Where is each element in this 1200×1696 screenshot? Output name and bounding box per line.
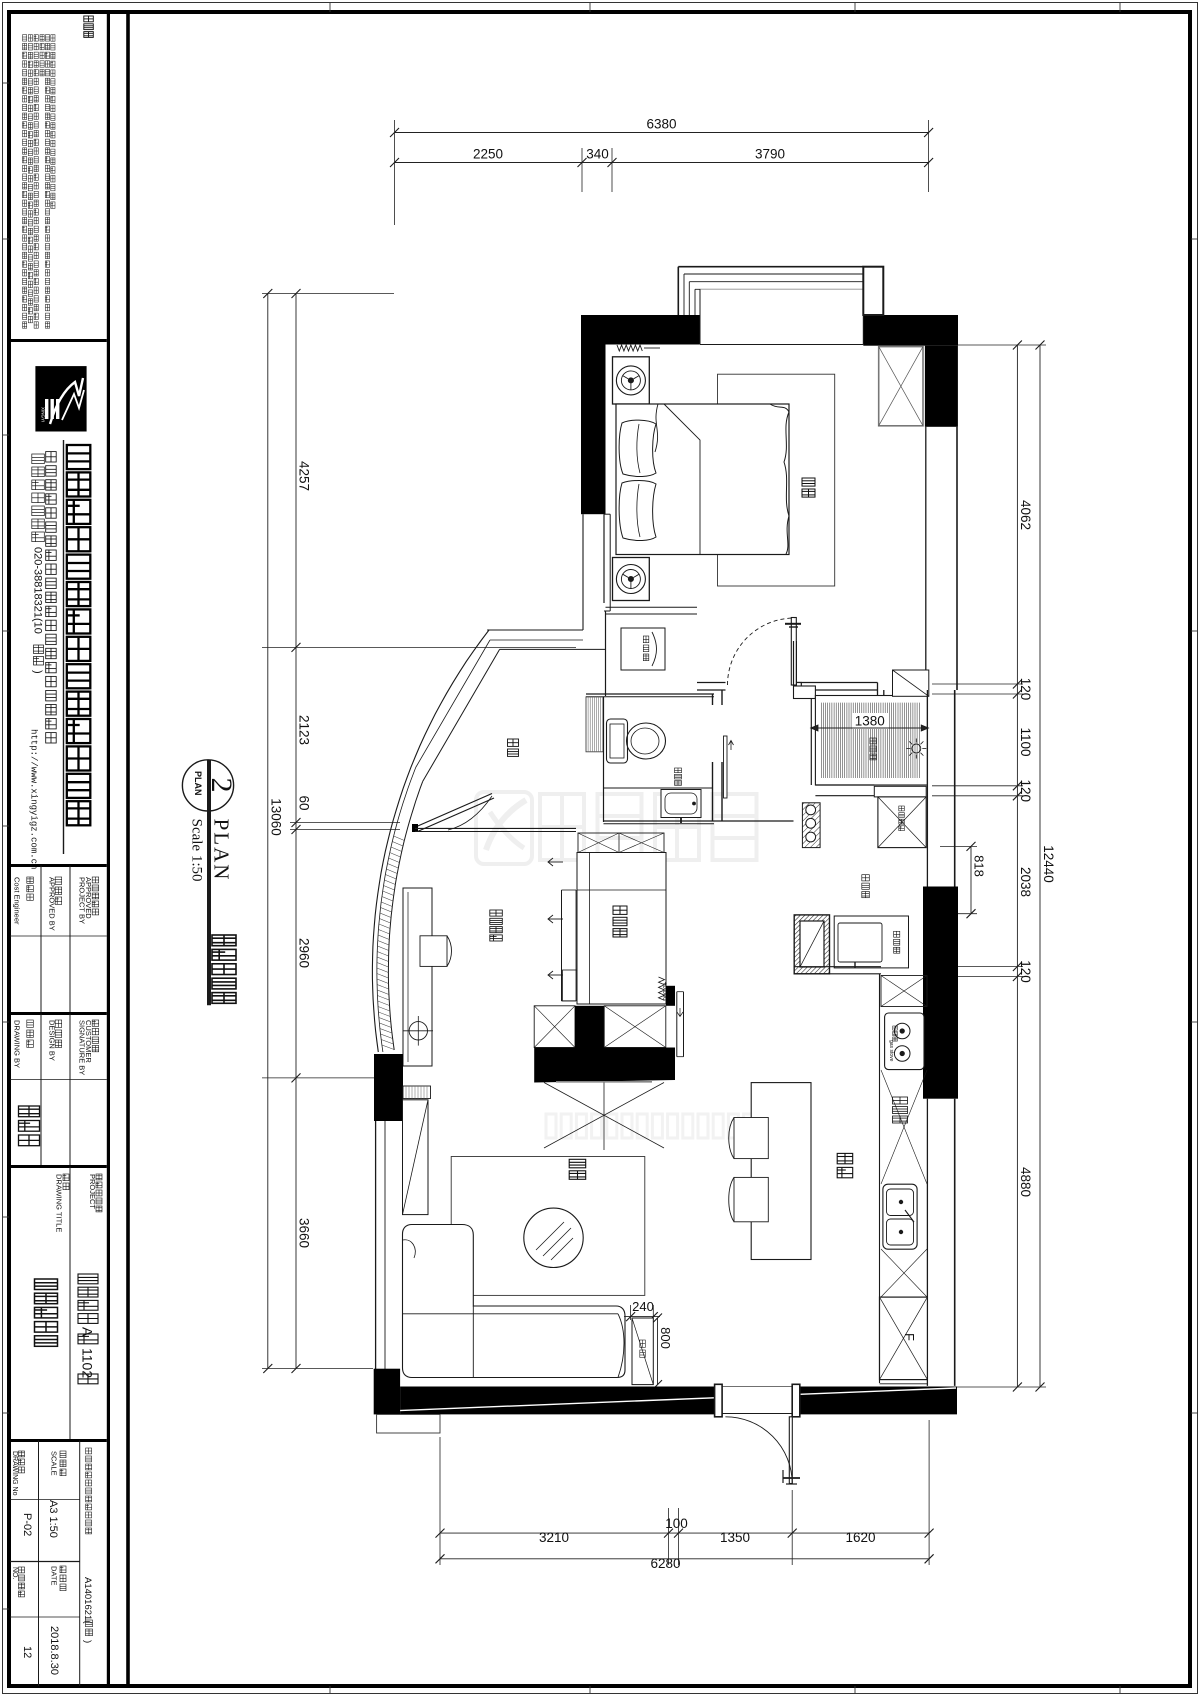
svg-text:120: 120 (1018, 780, 1033, 803)
svg-text:PLAN: PLAN (193, 771, 203, 796)
svg-text:340: 340 (586, 147, 609, 162)
svg-text:): ) (32, 670, 44, 674)
svg-text:3210: 3210 (539, 1530, 569, 1545)
svg-text:PROJECT BY: PROJECT BY (78, 877, 87, 924)
svg-text:2250: 2250 (473, 147, 503, 162)
svg-text:4257: 4257 (297, 461, 312, 491)
svg-text:A: A (80, 1327, 96, 1337)
svg-text:Cost Engineer: Cost Engineer (13, 877, 22, 925)
svg-text:2960: 2960 (297, 938, 312, 968)
svg-text:DRAWING TITLE: DRAWING TITLE (55, 1174, 64, 1232)
svg-text:1100: 1100 (1018, 727, 1033, 756)
svg-text:6280: 6280 (650, 1556, 680, 1571)
svg-text:3790: 3790 (755, 147, 785, 162)
svg-text:PROJECT: PROJECT (88, 1174, 97, 1209)
svg-text:2018.8.30: 2018.8.30 (48, 1626, 60, 1675)
svg-text:4880: 4880 (1018, 1167, 1033, 1197)
svg-text:1350: 1350 (720, 1530, 750, 1545)
svg-text:120: 120 (1018, 960, 1033, 983)
svg-text:SIGNATURE BY: SIGNATURE BY (78, 1020, 87, 1075)
svg-text:100: 100 (665, 1516, 688, 1531)
svg-text:2123: 2123 (297, 715, 312, 745)
svg-text:1380: 1380 (855, 714, 885, 729)
svg-text:DESIGN BY: DESIGN BY (48, 1020, 57, 1061)
svg-text:PLAN: PLAN (210, 819, 234, 882)
svg-text:NO.: NO. (11, 1567, 18, 1580)
svg-text:gas stove: gas stove (888, 1040, 894, 1062)
svg-text:240: 240 (632, 1299, 654, 1314)
svg-text:4062: 4062 (1018, 500, 1033, 530)
svg-text:800: 800 (658, 1327, 673, 1349)
svg-text:DRAWING BY: DRAWING BY (13, 1020, 22, 1068)
svg-text:12: 12 (21, 1646, 33, 1658)
svg-text:XINGYI: XINGYI (41, 407, 46, 422)
svg-text:3660: 3660 (297, 1218, 312, 1248)
svg-text:F: F (902, 1333, 917, 1341)
svg-text:http://www.xingyigz.com.cn: http://www.xingyigz.com.cn (29, 729, 39, 869)
svg-text:13060: 13060 (269, 798, 284, 836)
svg-text:6380: 6380 (646, 117, 676, 132)
svg-text:12440: 12440 (1041, 845, 1056, 883)
svg-text:120: 120 (1018, 678, 1033, 701)
svg-text:1620: 1620 (845, 1530, 875, 1545)
svg-text:A3 1:50: A3 1:50 (47, 1500, 59, 1538)
svg-text:2038: 2038 (1018, 867, 1033, 897)
svg-text:P-02: P-02 (21, 1513, 33, 1536)
svg-text:818: 818 (972, 855, 987, 877)
svg-text:020-38818321(10: 020-38818321(10 (32, 547, 44, 634)
svg-text:APPROVED BY: APPROVED BY (48, 877, 57, 931)
svg-text:A1401621(: A1401621( (82, 1577, 93, 1624)
svg-text:60: 60 (297, 795, 312, 810)
svg-text:DRAWING No: DRAWING No (11, 1451, 18, 1496)
svg-text:DATE: DATE (50, 1566, 59, 1585)
svg-text:): ) (82, 1640, 93, 1643)
svg-text:Scale 1:50: Scale 1:50 (189, 819, 205, 882)
svg-text:SCALE: SCALE (50, 1451, 59, 1476)
